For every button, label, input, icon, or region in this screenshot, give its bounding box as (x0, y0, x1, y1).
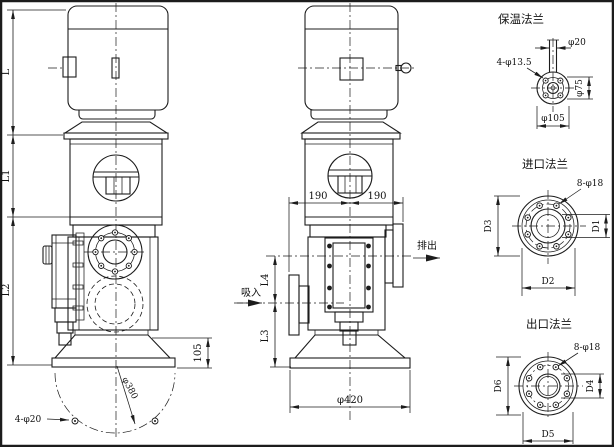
drawing-sheet: φ380 4-φ20 L L1 L2 105 (0, 0, 614, 447)
nozzle-height-dimensions: L4 L3 (260, 256, 291, 367)
dim-label-l3: L3 (260, 329, 271, 342)
valve-knob (43, 246, 52, 264)
bell-housing (302, 122, 400, 139)
dim-label-insulation-od: φ105 (541, 114, 565, 124)
dim-label-base-holes: 4-φ20 (15, 415, 42, 425)
pump-base: φ380 4-φ20 (15, 330, 175, 433)
motor (298, 6, 414, 119)
dim-label-inlet-holes: 8-φ18 (577, 179, 604, 189)
discharge-nozzle: 排出 (266, 224, 440, 287)
drain-fitting (343, 331, 356, 345)
dim-label-l2: L2 (1, 283, 12, 296)
view-title-outlet-flange: 出口法兰 (526, 317, 572, 331)
dim-label-l4: L4 (260, 273, 271, 286)
dim-label-span-right: 190 (367, 191, 386, 202)
dim-label-l1: L1 (1, 169, 12, 182)
pump-column (70, 139, 162, 237)
dim-label-pipe-dia: φ20 (568, 38, 586, 48)
pump-casing (308, 237, 385, 345)
view-title-inlet-flange: 进口法兰 (522, 157, 568, 171)
dim-label-base-dia: φ420 (337, 395, 363, 406)
height-dimension-chain: L L1 L2 (1, 10, 70, 365)
dim-label-outlet-holes: 8-φ18 (574, 343, 601, 353)
anchor-holes-leader (47, 419, 69, 420)
suction-flange (289, 275, 299, 335)
fan-cover (79, 110, 155, 119)
suction-label: 吸入 (241, 288, 261, 299)
pump-column (305, 139, 393, 237)
dim-label-span-left: 190 (308, 191, 327, 202)
front-view: 190 190 排出 (234, 3, 440, 420)
cover-plate (325, 238, 373, 312)
dim-label-insulation-bolt-circle: φ75 (575, 79, 585, 97)
terminal-box (63, 57, 76, 77)
fan-cover (311, 110, 387, 119)
base-bolt-circle (55, 373, 175, 433)
base-plate (52, 358, 175, 367)
dim-label-base-height: 105 (193, 343, 204, 362)
dim-label-base-bolt-circle: φ380 (119, 376, 139, 402)
side-view: φ380 4-φ20 L L1 L2 105 (1, 3, 212, 440)
pump-base: φ420 (290, 330, 410, 413)
discharge-flange-face (84, 225, 146, 279)
dim-label-l: L (1, 68, 12, 75)
dim-label-d3: D3 (484, 219, 494, 232)
dim-label-d2: D2 (542, 277, 555, 287)
view-title-insulation-flange: 保温法兰 (498, 12, 544, 26)
discharge-flange (393, 224, 403, 287)
relief-valve (43, 233, 84, 345)
dim-label-d5: D5 (542, 430, 555, 440)
suction-nozzle: 吸入 (234, 275, 344, 335)
motor (48, 6, 168, 119)
base-cone (55, 335, 170, 358)
flange-detail-outlet: 出口法兰 8-φ18 D6 D4 D5 (494, 317, 604, 444)
base-height-dimension: 105 (152, 338, 212, 368)
dim-label-d4: D4 (586, 379, 596, 392)
drain-fitting (59, 333, 71, 345)
flange-detail-insulation: 保温法兰 φ20 4-φ13.5 φ75 φ105 (496, 12, 593, 129)
dim-label-d1: D1 (592, 220, 602, 233)
dim-label-d6: D6 (494, 379, 504, 392)
flange-detail-inlet: 进口法兰 8-φ18 D3 D1 D2 (484, 157, 610, 296)
discharge-label: 排出 (417, 239, 437, 252)
dim-label-insulation-holes: 4-φ13.5 (496, 58, 531, 68)
terminal-box (340, 58, 363, 80)
lifting-lug (112, 58, 119, 78)
